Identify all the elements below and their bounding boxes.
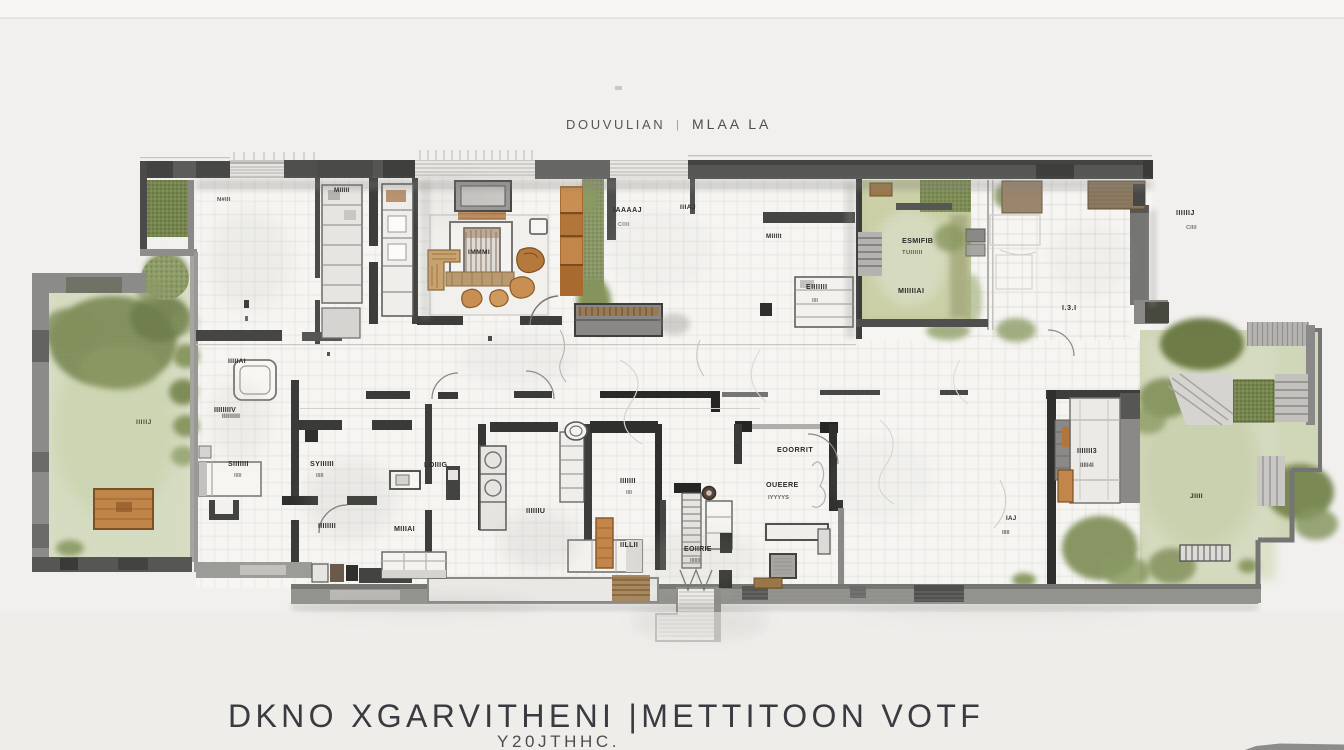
svg-text:ESMIFIB: ESMIFIB (902, 236, 933, 245)
svg-text:JIIII: JIIII (1190, 493, 1203, 500)
svg-text:IIIIIIII: IIIIIIII (318, 523, 336, 530)
svg-text:EOIIRIE: EOIIRIE (684, 546, 712, 553)
svg-text:MIIIAI: MIIIAI (394, 524, 415, 533)
svg-text:CIIlI: CIIlI (1186, 225, 1197, 231)
svg-text:IIIAJ: IIIAJ (680, 204, 696, 211)
svg-text:DKNO XGARVITHENI |METTITOON VO: DKNO XGARVITHENI |METTITOON VOTF (228, 698, 984, 734)
svg-text:lIII: lIII (626, 490, 632, 496)
svg-text:SIIIIIII: SIIIIIII (228, 461, 249, 468)
svg-text:MIIIII: MIIIII (334, 187, 350, 194)
svg-text:IIIIIJ: IIIIIJ (136, 419, 152, 426)
svg-text:IIIII4I: IIIII4I (1080, 462, 1094, 469)
svg-text:N#lIl: N#lIl (217, 197, 231, 203)
svg-text:IIIlI: IIIlI (316, 473, 324, 479)
svg-text:IMMMI: IMMMI (468, 249, 490, 256)
svg-text:IYYYYS: IYYYYS (768, 495, 789, 501)
svg-text:IIIIIlI: IIIIIlI (690, 558, 701, 564)
svg-text:IIIIIII: IIIIIII (620, 478, 636, 485)
svg-text:|: | (676, 119, 679, 131)
svg-text:TUIIIIII: TUIIIIII (902, 250, 923, 256)
svg-text:LOIIIG: LOIIIG (424, 460, 447, 469)
svg-text:EOORRIT: EOORRIT (777, 445, 813, 454)
svg-text:OUEERE: OUEERE (766, 480, 799, 489)
svg-text:IIIIIII3: IIIIIII3 (1077, 448, 1097, 455)
svg-text:IIIIIIU: IIIIIIU (526, 506, 545, 515)
svg-text:IIIIIAI: IIIIIAI (228, 358, 246, 365)
svg-text:IIIIIIJ: IIIIIIJ (1176, 208, 1195, 217)
svg-text:IIIII: IIIII (1002, 530, 1010, 536)
svg-text:IIIIIIIII: IIIIIIIII (222, 413, 240, 420)
svg-text:MLAA LA: MLAA LA (692, 116, 771, 132)
svg-text:IILLII: IILLII (620, 542, 638, 549)
svg-text:DOUVULIAN: DOUVULIAN (566, 117, 665, 132)
svg-text:lIIII: lIIII (234, 473, 242, 479)
svg-text:EIIIIIII: EIIIIIII (806, 284, 827, 291)
svg-text:Y20JTHHC.: Y20JTHHC. (497, 732, 620, 750)
svg-text:MIIIIt: MIIIIt (766, 233, 782, 240)
svg-text:CIIll: CIIll (618, 222, 630, 228)
svg-text:IAJ: IAJ (1006, 515, 1017, 522)
svg-text:I.3.I: I.3.I (1062, 305, 1077, 312)
svg-text:lIIl: lIIl (812, 298, 818, 304)
svg-text:IAAAAJ: IAAAAJ (613, 207, 642, 214)
svg-text:SYIIIIII: SYIIIIII (310, 459, 334, 468)
svg-text:MIIIIIAI: MIIIIIAI (898, 286, 924, 295)
